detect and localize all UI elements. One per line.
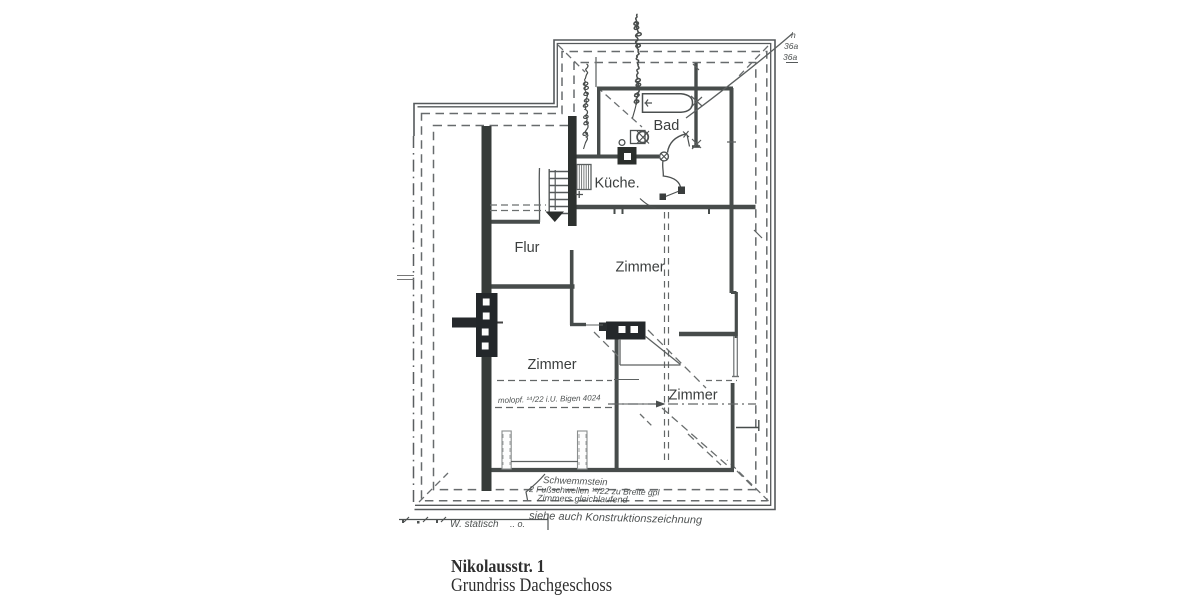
svg-text:h: h [791,30,796,40]
svg-text:Zimmer: Zimmer [616,260,665,276]
svg-text:molopf. ¹⁴/22 i.U. Bigen 4024: molopf. ¹⁴/22 i.U. Bigen 4024 [498,393,601,405]
svg-text:Bad: Bad [654,118,680,134]
svg-text:Zimmer: Zimmer [528,357,577,373]
svg-text:Küche.: Küche. [595,176,640,192]
svg-text:Flur: Flur [515,240,540,256]
svg-text:siehe auch Konstruktionszeichn: siehe auch Konstruktionszeichnung [529,510,703,527]
svg-text:.. o.: .. o. [510,519,525,529]
svg-text:Zimmers gleichlaufend: Zimmers gleichlaufend [536,493,629,505]
svg-text:W. statisch: W. statisch [450,519,499,530]
svg-text:36a: 36a [783,52,797,62]
svg-text:36a: 36a [784,41,798,51]
svg-text:Zimmer: Zimmer [669,388,718,404]
